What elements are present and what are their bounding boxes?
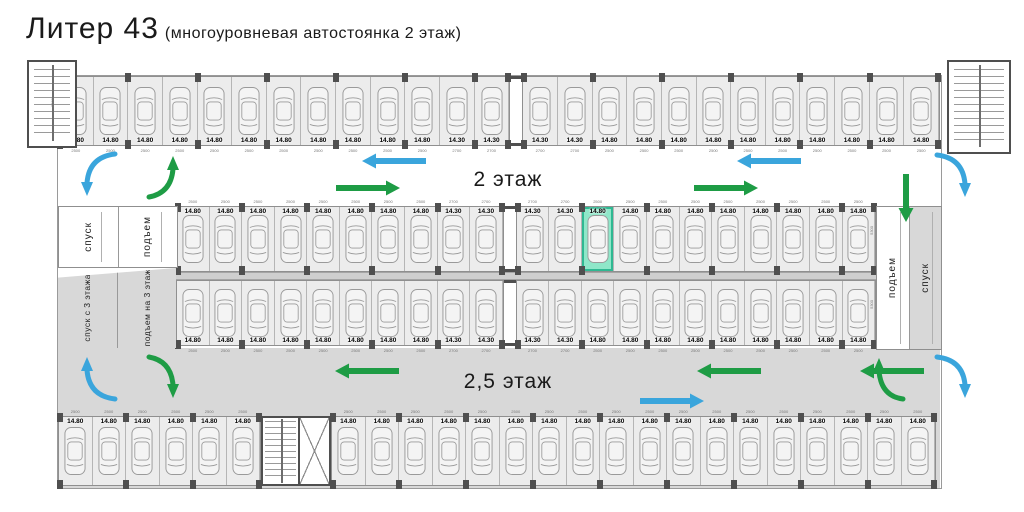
column (463, 480, 469, 489)
parking-spot[interactable]: 14.802500 (567, 417, 601, 485)
column (190, 480, 196, 489)
parking-spot[interactable]: 14.802500 (614, 281, 647, 345)
parking-spot[interactable]: 14.302700 (438, 207, 471, 271)
column (731, 413, 737, 422)
parking-spot[interactable]: 14.802500 (766, 77, 801, 145)
stairwell (261, 416, 331, 486)
parking-spot[interactable]: 14.802500 (177, 207, 210, 271)
dimension-label: 2700 (475, 148, 509, 153)
parking-spot[interactable]: 14.802500 (242, 281, 275, 345)
title-main: Литер 43 (26, 12, 159, 45)
car-icon (134, 86, 157, 136)
dimension-label: 2500 (59, 409, 92, 414)
spot-area-label: 14.30 (517, 337, 549, 344)
parking-spot[interactable]: 14.302700 (549, 207, 582, 271)
dimension-label: 2700 (438, 199, 470, 204)
spot-area-label: 14.80 (614, 208, 646, 215)
car-icon (605, 426, 628, 476)
parking-spot[interactable]: 14.802500 (647, 207, 680, 271)
row-segment: 14.80250014.80250014.80250014.80250014.8… (176, 206, 504, 272)
column (774, 203, 780, 212)
car-icon (409, 288, 432, 338)
column (330, 480, 336, 489)
car-icon (442, 214, 465, 264)
parking-spot[interactable]: 14.802500 (433, 417, 467, 485)
column (396, 413, 402, 422)
parking-spot[interactable]: 14.802500 (307, 281, 340, 345)
car-icon (814, 214, 837, 264)
ramp-label: подъем на 3 этаж (142, 269, 152, 346)
spot-area-label: 14.30 (438, 208, 470, 215)
column (402, 140, 408, 149)
parking-spot[interactable]: 14.802500 (768, 417, 802, 485)
dimension-label: 2500 (843, 348, 875, 353)
parking-spot[interactable]: 14.302700 (549, 281, 582, 345)
parking-spot[interactable]: 14.302700 (475, 77, 510, 145)
row-divider (176, 272, 876, 280)
car-icon (214, 288, 237, 338)
side-dimension-label: 5300 (869, 300, 874, 309)
column (472, 73, 478, 82)
dimension-label: 2700 (549, 348, 581, 353)
dimension-label: 2500 (680, 199, 712, 204)
parking-spot[interactable]: 14.802500 (336, 77, 371, 145)
spot-area-label: 14.80 (582, 337, 614, 344)
parking-spot[interactable]: 14.802500 (614, 207, 647, 271)
dimension-label: 2500 (567, 409, 600, 414)
dimension-label: 2500 (242, 348, 274, 353)
car-icon (782, 288, 805, 338)
arrow-blue-curve-head (959, 183, 971, 197)
column (865, 413, 871, 422)
column (867, 140, 873, 149)
car-icon (64, 426, 87, 476)
dimension-label: 2500 (177, 348, 209, 353)
column (839, 203, 845, 212)
parking-spot[interactable]: 14.302700 (517, 281, 550, 345)
dimension-label: 2500 (634, 409, 667, 414)
dimension-label: 2500 (405, 199, 437, 204)
column (774, 266, 780, 275)
parking-spot[interactable]: 14.802500 (307, 207, 340, 271)
car-icon (739, 426, 762, 476)
stair-tower-right (947, 60, 1011, 154)
column (123, 480, 129, 489)
row-segment: 14.80250014.80250014.80250014.80250014.8… (58, 416, 261, 486)
parking-spot[interactable]: 14.802500 (810, 207, 843, 271)
ramp-cell-ascent-3: подъем на 3 этаж (117, 268, 177, 348)
parking-spot[interactable]: 14.802500 (232, 77, 267, 145)
column (590, 140, 596, 149)
parking-spot[interactable]: 14.802500 (745, 207, 778, 271)
column (867, 73, 873, 82)
ramp-label: спуск с 3 этажа (82, 274, 92, 342)
parking-spot[interactable]: 14.802500 (712, 207, 745, 271)
column (396, 480, 402, 489)
row-segment: 14.30270014.30270014.80250014.80250014.8… (516, 206, 876, 272)
ramp-line (101, 212, 102, 262)
dimension-label: 2500 (614, 348, 646, 353)
dimension-label: 2500 (810, 199, 842, 204)
parking-spot[interactable]: 14.802500 (734, 417, 768, 485)
spot-area-label: 14.80 (399, 418, 432, 425)
spot-area-label: 14.80 (731, 137, 765, 144)
spot-area-label: 14.80 (533, 418, 566, 425)
column (659, 140, 665, 149)
spot-area-label: 14.80 (94, 137, 128, 144)
spot-area-label: 14.80 (835, 418, 868, 425)
car-icon (272, 86, 295, 136)
column (797, 73, 803, 82)
parking-row-middle-upper: 14.80250014.80250014.80250014.80250014.8… (176, 206, 876, 272)
parking-spot[interactable]: 14.802500 (843, 281, 876, 345)
parking-spot[interactable]: 14.802500 (59, 417, 93, 485)
car-icon (672, 426, 695, 476)
parking-spot[interactable]: 14.802500 (210, 281, 243, 345)
parking-spot[interactable]: 14.802500 (405, 281, 438, 345)
ramp-cell-descent-3: спуск с 3 этажа (58, 268, 117, 348)
parking-spot[interactable]: 14.802500 (627, 77, 662, 145)
parking-spot[interactable]: 14.802500 (210, 207, 243, 271)
parking-spot[interactable]: 14.802500 (843, 207, 876, 271)
column (369, 340, 375, 349)
dimension-label: 2500 (614, 199, 646, 204)
spot-area-label: 14.80 (405, 337, 437, 344)
column (57, 413, 63, 422)
ramp-left-upper: спуск подъем (58, 206, 178, 268)
parking-spot[interactable]: 14.802500 (275, 207, 308, 271)
column (256, 413, 262, 422)
parking-spot[interactable]: 14.802500 (160, 417, 194, 485)
car-icon (203, 86, 226, 136)
car-icon (131, 426, 154, 476)
car-icon (307, 86, 330, 136)
parking-spot[interactable]: 14.802500 (777, 281, 810, 345)
spot-area-label: 14.80 (340, 208, 372, 215)
dimension-label: 2500 (582, 348, 614, 353)
column (659, 73, 665, 82)
parking-spot[interactable]: 14.302700 (470, 281, 503, 345)
column (530, 413, 536, 422)
spot-area-label: 14.80 (275, 208, 307, 215)
parking-spot[interactable]: 14.802500 (868, 417, 902, 485)
parking-row-middle-lower: 14.80250014.80250014.80250014.80250014.8… (176, 280, 876, 346)
column (709, 266, 715, 275)
spot-area-label: 14.80 (745, 208, 777, 215)
dimension-label: 2500 (366, 409, 399, 414)
staircase (265, 421, 296, 481)
spot-area-label: 14.80 (600, 418, 633, 425)
car-icon (840, 86, 863, 136)
spot-area-label: 14.80 (593, 137, 627, 144)
parking-spot[interactable]: 14.802500 (372, 207, 405, 271)
parking-spot[interactable]: 14.802500 (904, 77, 939, 145)
dimension-label: 2500 (662, 148, 696, 153)
dimension-label: 2500 (647, 199, 679, 204)
dimension-label: 2500 (701, 409, 734, 414)
column (402, 73, 408, 82)
column (664, 413, 670, 422)
parking-spot[interactable]: 14.802500 (163, 77, 198, 145)
column (190, 413, 196, 422)
spot-area-label: 14.80 (242, 208, 274, 215)
car-icon (377, 288, 400, 338)
car-icon (633, 86, 656, 136)
spot-area-label: 14.30 (523, 137, 557, 144)
side-dimension-label: 5300 (50, 98, 55, 107)
parking-spot[interactable]: 14.802500 (242, 207, 275, 271)
column (264, 73, 270, 82)
dimension-label: 2700 (517, 199, 549, 204)
parking-spot[interactable]: 14.302700 (558, 77, 593, 145)
parking-spot[interactable]: 14.802500 (701, 417, 735, 485)
spot-area-label: 14.80 (745, 337, 777, 344)
car-icon (667, 86, 690, 136)
spot-area-label: 14.80 (372, 337, 404, 344)
parking-spot[interactable]: 14.802500 (466, 417, 500, 485)
parking-spot[interactable]: 14.802500 (93, 417, 127, 485)
parking-spot[interactable]: 14.802500 (500, 417, 534, 485)
car-icon (705, 426, 728, 476)
dimension-label: 2500 (193, 409, 226, 414)
car-icon (238, 86, 261, 136)
car-icon (847, 214, 870, 264)
parking-spot[interactable]: 14.802500 (405, 207, 438, 271)
parking-spot[interactable]: 14.802500 (662, 77, 697, 145)
parking-row-top: 14.80250014.80250014.80250014.80250014.8… (58, 76, 940, 146)
parking-spot[interactable]: 14.802500 (800, 77, 835, 145)
parking-spot[interactable]: 14.802500 (697, 77, 732, 145)
column (798, 480, 804, 489)
ramp-line (932, 212, 933, 344)
car-icon (99, 86, 122, 136)
parking-spot[interactable]: 14.802500 (712, 281, 745, 345)
parking-spot[interactable]: 14.802500 (777, 207, 810, 271)
spot-area-label: 14.80 (275, 337, 307, 344)
spot-area-label: 14.80 (301, 137, 335, 144)
car-icon (312, 214, 335, 264)
car-icon (716, 288, 739, 338)
ramp-label: спуск (83, 222, 94, 252)
column (579, 266, 585, 275)
parking-spot[interactable]: 14.802500 (405, 77, 440, 145)
car-icon (370, 426, 393, 476)
ramp-label: подъем (142, 216, 153, 257)
car-icon (684, 214, 707, 264)
car-icon (181, 288, 204, 338)
parking-spot[interactable]: 14.802500 (275, 281, 308, 345)
parking-spot[interactable]: 14.802500 (332, 417, 366, 485)
parking-spot[interactable]: 14.802500 (634, 417, 668, 485)
spot-area-label: 14.80 (242, 337, 274, 344)
ramp-right: подъем спуск (876, 206, 942, 350)
dimension-label: 2500 (372, 348, 404, 353)
car-icon (906, 426, 929, 476)
parking-spot[interactable]: 14.802500 (193, 417, 227, 485)
parking-spot[interactable]: 14.802500 (366, 417, 400, 485)
spot-area-label: 14.80 (680, 337, 712, 344)
dimension-label: 2500 (93, 409, 126, 414)
column (644, 340, 650, 349)
car-icon (716, 214, 739, 264)
parking-spot[interactable]: 14.802500 (835, 417, 869, 485)
car-icon (814, 288, 837, 338)
ramp-label: подъем (887, 257, 898, 298)
parking-spot[interactable]: 14.802500 (267, 77, 302, 145)
stairs-icon (954, 69, 1004, 145)
spot-area-label: 14.80 (904, 137, 938, 144)
parking-spot[interactable]: 14.802500 (126, 417, 160, 485)
column (644, 203, 650, 212)
parking-spot[interactable]: 14.802500 (810, 281, 843, 345)
column (505, 73, 511, 82)
column (644, 266, 650, 275)
car-icon (312, 288, 335, 338)
car-icon (749, 288, 772, 338)
spot-area-label: 14.80 (267, 137, 301, 144)
spot-area-label: 14.80 (126, 418, 159, 425)
car-icon (749, 214, 772, 264)
row-segment: 14.80250014.80250014.80250014.80250014.8… (58, 76, 510, 146)
parking-spot[interactable]: 14.802500 (372, 281, 405, 345)
column (435, 203, 441, 212)
spot-area-label: 14.80 (227, 418, 260, 425)
dimension-label: 2500 (712, 348, 744, 353)
car-icon (404, 426, 427, 476)
parking-spot[interactable]: 14.302700 (517, 207, 550, 271)
dimension-label: 2700 (558, 148, 592, 153)
parking-spot[interactable]: 14.802500 (128, 77, 163, 145)
car-icon (772, 426, 795, 476)
car-icon (651, 214, 674, 264)
parking-spot[interactable]: 14.302700 (440, 77, 475, 145)
dimension-label: 2500 (680, 348, 712, 353)
column (499, 266, 505, 275)
parking-spot[interactable]: 14.802500 (801, 417, 835, 485)
column (797, 140, 803, 149)
dimension-label: 2500 (582, 199, 614, 204)
dimension-label: 2700 (549, 199, 581, 204)
spot-area-label: 14.80 (193, 418, 226, 425)
dimension-label: 2500 (902, 409, 935, 414)
parking-spot[interactable]: 14.802500 (600, 417, 634, 485)
spot-area-label: 14.80 (777, 208, 809, 215)
car-icon (474, 288, 497, 338)
parking-row-middle: 14.80250014.80250014.80250014.80250014.8… (176, 206, 876, 348)
parking-spot[interactable]: 14.802500 (533, 417, 567, 485)
column (731, 480, 737, 489)
column (333, 140, 339, 149)
car-icon (474, 214, 497, 264)
dimension-label: 2500 (340, 348, 372, 353)
column (515, 266, 521, 275)
parking-spot[interactable]: 14.802500 (902, 417, 936, 485)
spot-area-label: 14.80 (766, 137, 800, 144)
parking-spot[interactable]: 14.302700 (470, 207, 503, 271)
parking-spot[interactable]: 14.802500 (870, 77, 905, 145)
column (597, 480, 603, 489)
parking-spot[interactable]: 14.802500 (301, 77, 336, 145)
column (664, 480, 670, 489)
parking-spot[interactable]: 14.802500 (731, 77, 766, 145)
spot-area-label: 14.80 (810, 208, 842, 215)
dimension-label: 2500 (94, 148, 128, 153)
car-icon (619, 214, 642, 264)
wall-gap (504, 206, 516, 272)
floor-label-2: 2 этаж (378, 168, 638, 192)
parking-spot-selected[interactable]: 14.802500 (582, 207, 615, 271)
car-icon (181, 214, 204, 264)
spot-area-label: 14.80 (680, 208, 712, 215)
parking-spot[interactable]: 14.802500 (198, 77, 233, 145)
car-icon (409, 214, 432, 264)
parking-spot[interactable]: 14.802500 (835, 77, 870, 145)
spot-area-label: 14.80 (697, 137, 731, 144)
dimension-label: 2500 (843, 199, 875, 204)
spot-area-label: 14.80 (582, 208, 614, 215)
car-icon (376, 86, 399, 136)
parking-spot[interactable]: 14.302700 (438, 281, 471, 345)
car-icon (445, 86, 468, 136)
spot-area-label: 14.80 (198, 137, 232, 144)
car-icon (246, 214, 269, 264)
parking-spot[interactable]: 14.802500 (399, 417, 433, 485)
column (239, 340, 245, 349)
dimension-label: 2500 (336, 148, 370, 153)
dimension-label: 2500 (371, 148, 405, 153)
parking-spot[interactable]: 14.802500 (680, 281, 713, 345)
car-icon (873, 426, 896, 476)
spot-area-label: 14.80 (835, 137, 869, 144)
column (709, 203, 715, 212)
parking-spot[interactable]: 14.802500 (745, 281, 778, 345)
parking-spot[interactable]: 14.802500 (582, 281, 615, 345)
parking-spot[interactable]: 14.802500 (340, 207, 373, 271)
column (590, 73, 596, 82)
dimension-label: 2500 (466, 409, 499, 414)
parking-spot[interactable]: 14.802500 (371, 77, 406, 145)
dimension-label: 2500 (227, 409, 260, 414)
car-icon (521, 214, 544, 264)
parking-spot[interactable]: 14.302700 (523, 77, 558, 145)
spot-area-label: 14.80 (210, 337, 242, 344)
parking-spot[interactable]: 14.802500 (593, 77, 628, 145)
parking-spot[interactable]: 14.802500 (340, 281, 373, 345)
dimension-label: 2700 (523, 148, 557, 153)
dimension-label: 2500 (275, 348, 307, 353)
car-icon (231, 426, 254, 476)
parking-spot[interactable]: 14.802500 (94, 77, 129, 145)
ramp-left-lower: спуск с 3 этажа подъем на 3 этаж (58, 268, 176, 348)
dimension-label: 2500 (275, 199, 307, 204)
dimension-label: 2500 (332, 409, 365, 414)
car-icon (910, 86, 933, 136)
spot-area-label: 14.30 (470, 208, 502, 215)
parking-spot[interactable]: 14.802500 (680, 207, 713, 271)
side-dimension-label: 5300 (869, 226, 874, 235)
car-icon (437, 426, 460, 476)
parking-spot[interactable]: 14.802500 (647, 281, 680, 345)
parking-spot[interactable]: 14.802500 (667, 417, 701, 485)
parking-spot[interactable]: 14.802500 (177, 281, 210, 345)
parking-spot[interactable]: 14.802500 (227, 417, 261, 485)
dimension-label: 2500 (800, 148, 834, 153)
column (865, 480, 871, 489)
column (839, 266, 845, 275)
dimension-label: 2500 (177, 199, 209, 204)
dimension-label: 2500 (904, 148, 938, 153)
dimension-label: 2500 (593, 148, 627, 153)
